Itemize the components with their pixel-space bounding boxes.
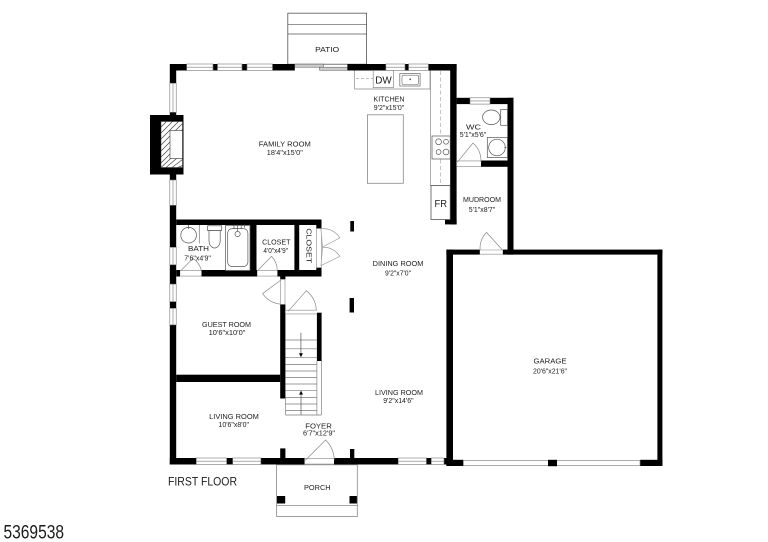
svg-text:4'0"x4'9": 4'0"x4'9" <box>263 248 288 255</box>
svg-text:FR: FR <box>435 199 448 210</box>
svg-text:WC: WC <box>466 122 482 131</box>
svg-text:GARAGE: GARAGE <box>534 357 567 366</box>
svg-text:5'1"x5'6": 5'1"x5'6" <box>460 132 487 139</box>
svg-text:FIRST FLOOR: FIRST FLOOR <box>168 476 237 488</box>
svg-text:9'2"x15'0": 9'2"x15'0" <box>374 105 405 112</box>
svg-text:LIVING ROOM: LIVING ROOM <box>375 388 423 397</box>
svg-text:5'1"x8'7": 5'1"x8'7" <box>469 207 496 214</box>
svg-text:9'2"x7'0": 9'2"x7'0" <box>385 271 411 278</box>
svg-text:7'6"x4'9": 7'6"x4'9" <box>184 255 211 262</box>
svg-text:CLOSET: CLOSET <box>262 238 291 247</box>
svg-text:BATH: BATH <box>188 244 209 253</box>
svg-text:LIVING ROOM: LIVING ROOM <box>209 412 259 421</box>
svg-text:FAMILY ROOM: FAMILY ROOM <box>259 139 311 148</box>
svg-text:CLOSET: CLOSET <box>304 228 313 263</box>
svg-text:5369538: 5369538 <box>4 522 65 542</box>
svg-text:PORCH: PORCH <box>304 485 331 492</box>
svg-text:10'6"x10'0": 10'6"x10'0" <box>209 330 246 337</box>
svg-text:6'7"x12'9": 6'7"x12'9" <box>303 431 336 438</box>
svg-text:DINING ROOM: DINING ROOM <box>373 259 424 268</box>
svg-text:20'6"x21'6": 20'6"x21'6" <box>533 369 567 376</box>
svg-text:FOYER: FOYER <box>305 421 332 430</box>
svg-text:9'2"x14'6": 9'2"x14'6" <box>383 398 414 405</box>
svg-text:18'4"x15'0": 18'4"x15'0" <box>267 150 304 157</box>
svg-text:PATIO: PATIO <box>315 45 339 54</box>
svg-text:MUDROOM: MUDROOM <box>463 195 501 204</box>
svg-text:KITCHEN: KITCHEN <box>374 95 405 104</box>
svg-text:10'6"x8'0": 10'6"x8'0" <box>218 422 249 429</box>
svg-text:GUEST ROOM: GUEST ROOM <box>202 320 251 329</box>
svg-text:DW: DW <box>375 75 392 86</box>
